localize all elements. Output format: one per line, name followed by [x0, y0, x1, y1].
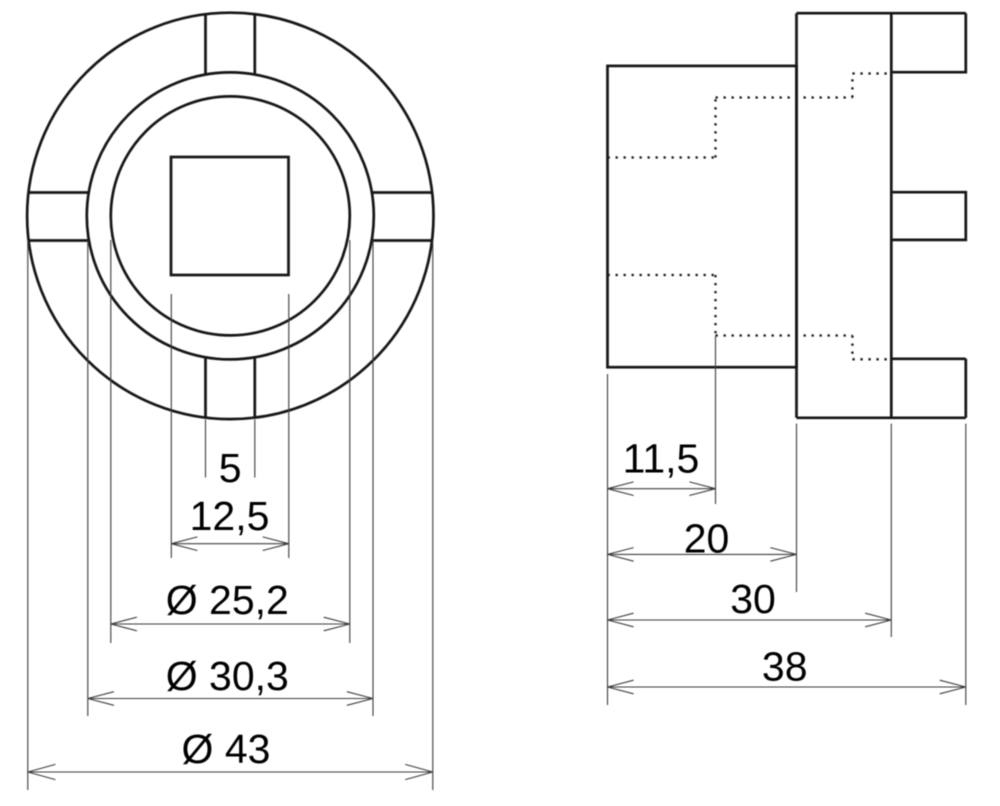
svg-text:20: 20	[684, 515, 730, 561]
svg-text:Ø 43: Ø 43	[182, 726, 271, 772]
svg-text:5: 5	[219, 445, 242, 491]
svg-text:Ø 25,2: Ø 25,2	[166, 577, 289, 623]
svg-text:30: 30	[730, 576, 776, 622]
svg-text:12,5: 12,5	[190, 493, 270, 539]
svg-text:11,5: 11,5	[623, 436, 700, 482]
svg-text:Ø 30,3: Ø 30,3	[166, 653, 289, 699]
svg-text:38: 38	[762, 644, 808, 690]
